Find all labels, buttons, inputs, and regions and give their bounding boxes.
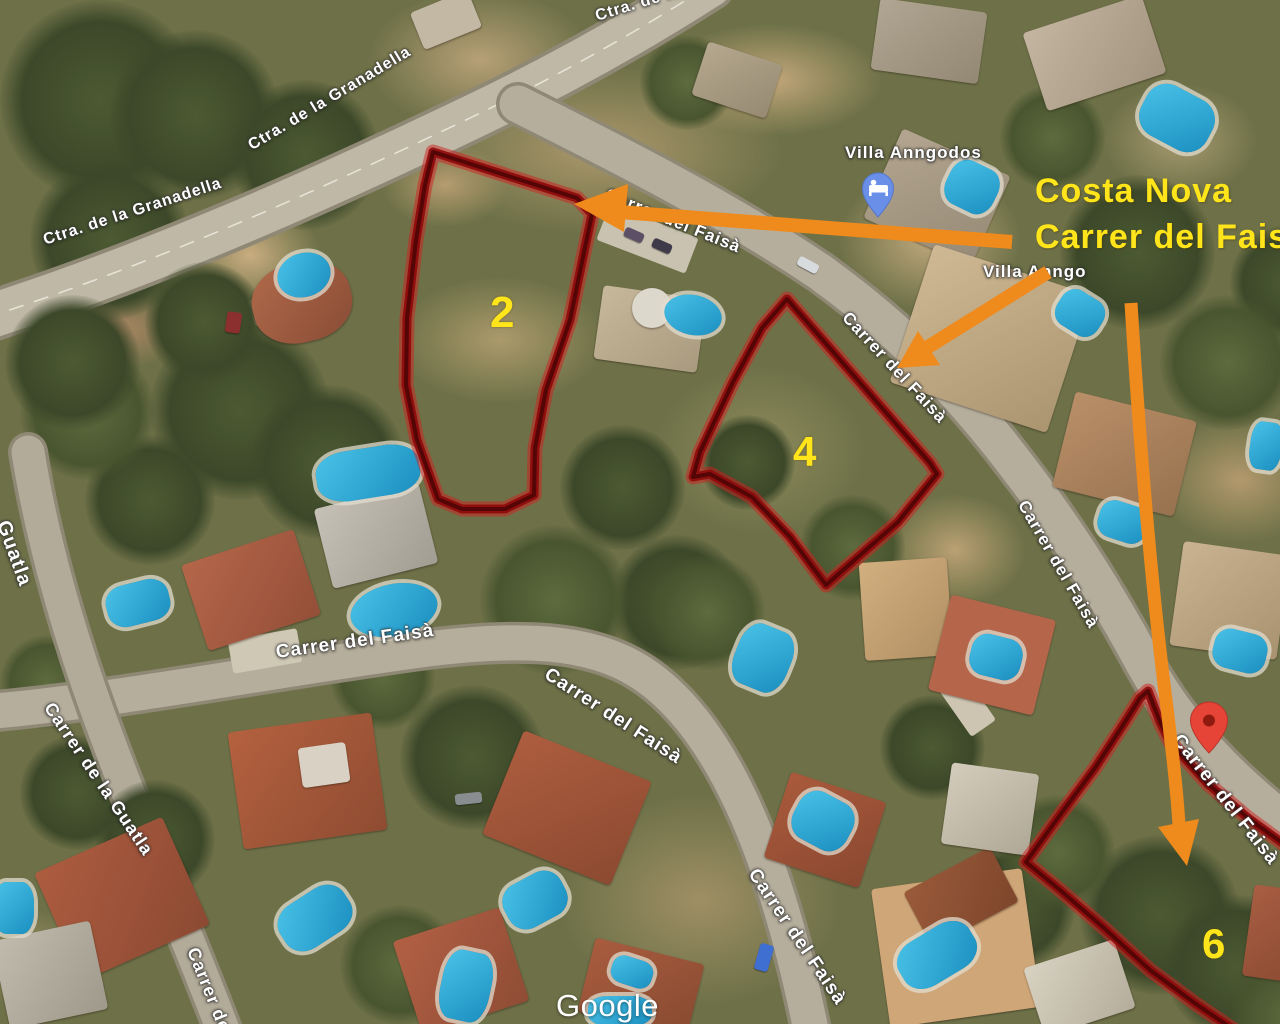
- annotation-layer: [0, 0, 1280, 1024]
- arrow-to-plot-6: [1131, 303, 1199, 866]
- red-map-pin[interactable]: [1191, 702, 1228, 753]
- annotation-title-line1: Costa Nova: [1035, 172, 1232, 211]
- plot-number-6: 6: [1202, 920, 1225, 968]
- annotation-title-line2: Carrer del Faisà: [1035, 218, 1280, 257]
- lodging-pin[interactable]: [863, 173, 894, 217]
- satellite-map[interactable]: Ctra. de la Granadella Ctra. de la Grana…: [0, 0, 1280, 1024]
- google-watermark: Google: [556, 988, 659, 1024]
- arrow-to-road: [897, 272, 1048, 368]
- arrow-to-plot-2: [574, 184, 1012, 242]
- plot-number-4: 4: [793, 428, 816, 476]
- plot-number-2: 2: [490, 288, 514, 338]
